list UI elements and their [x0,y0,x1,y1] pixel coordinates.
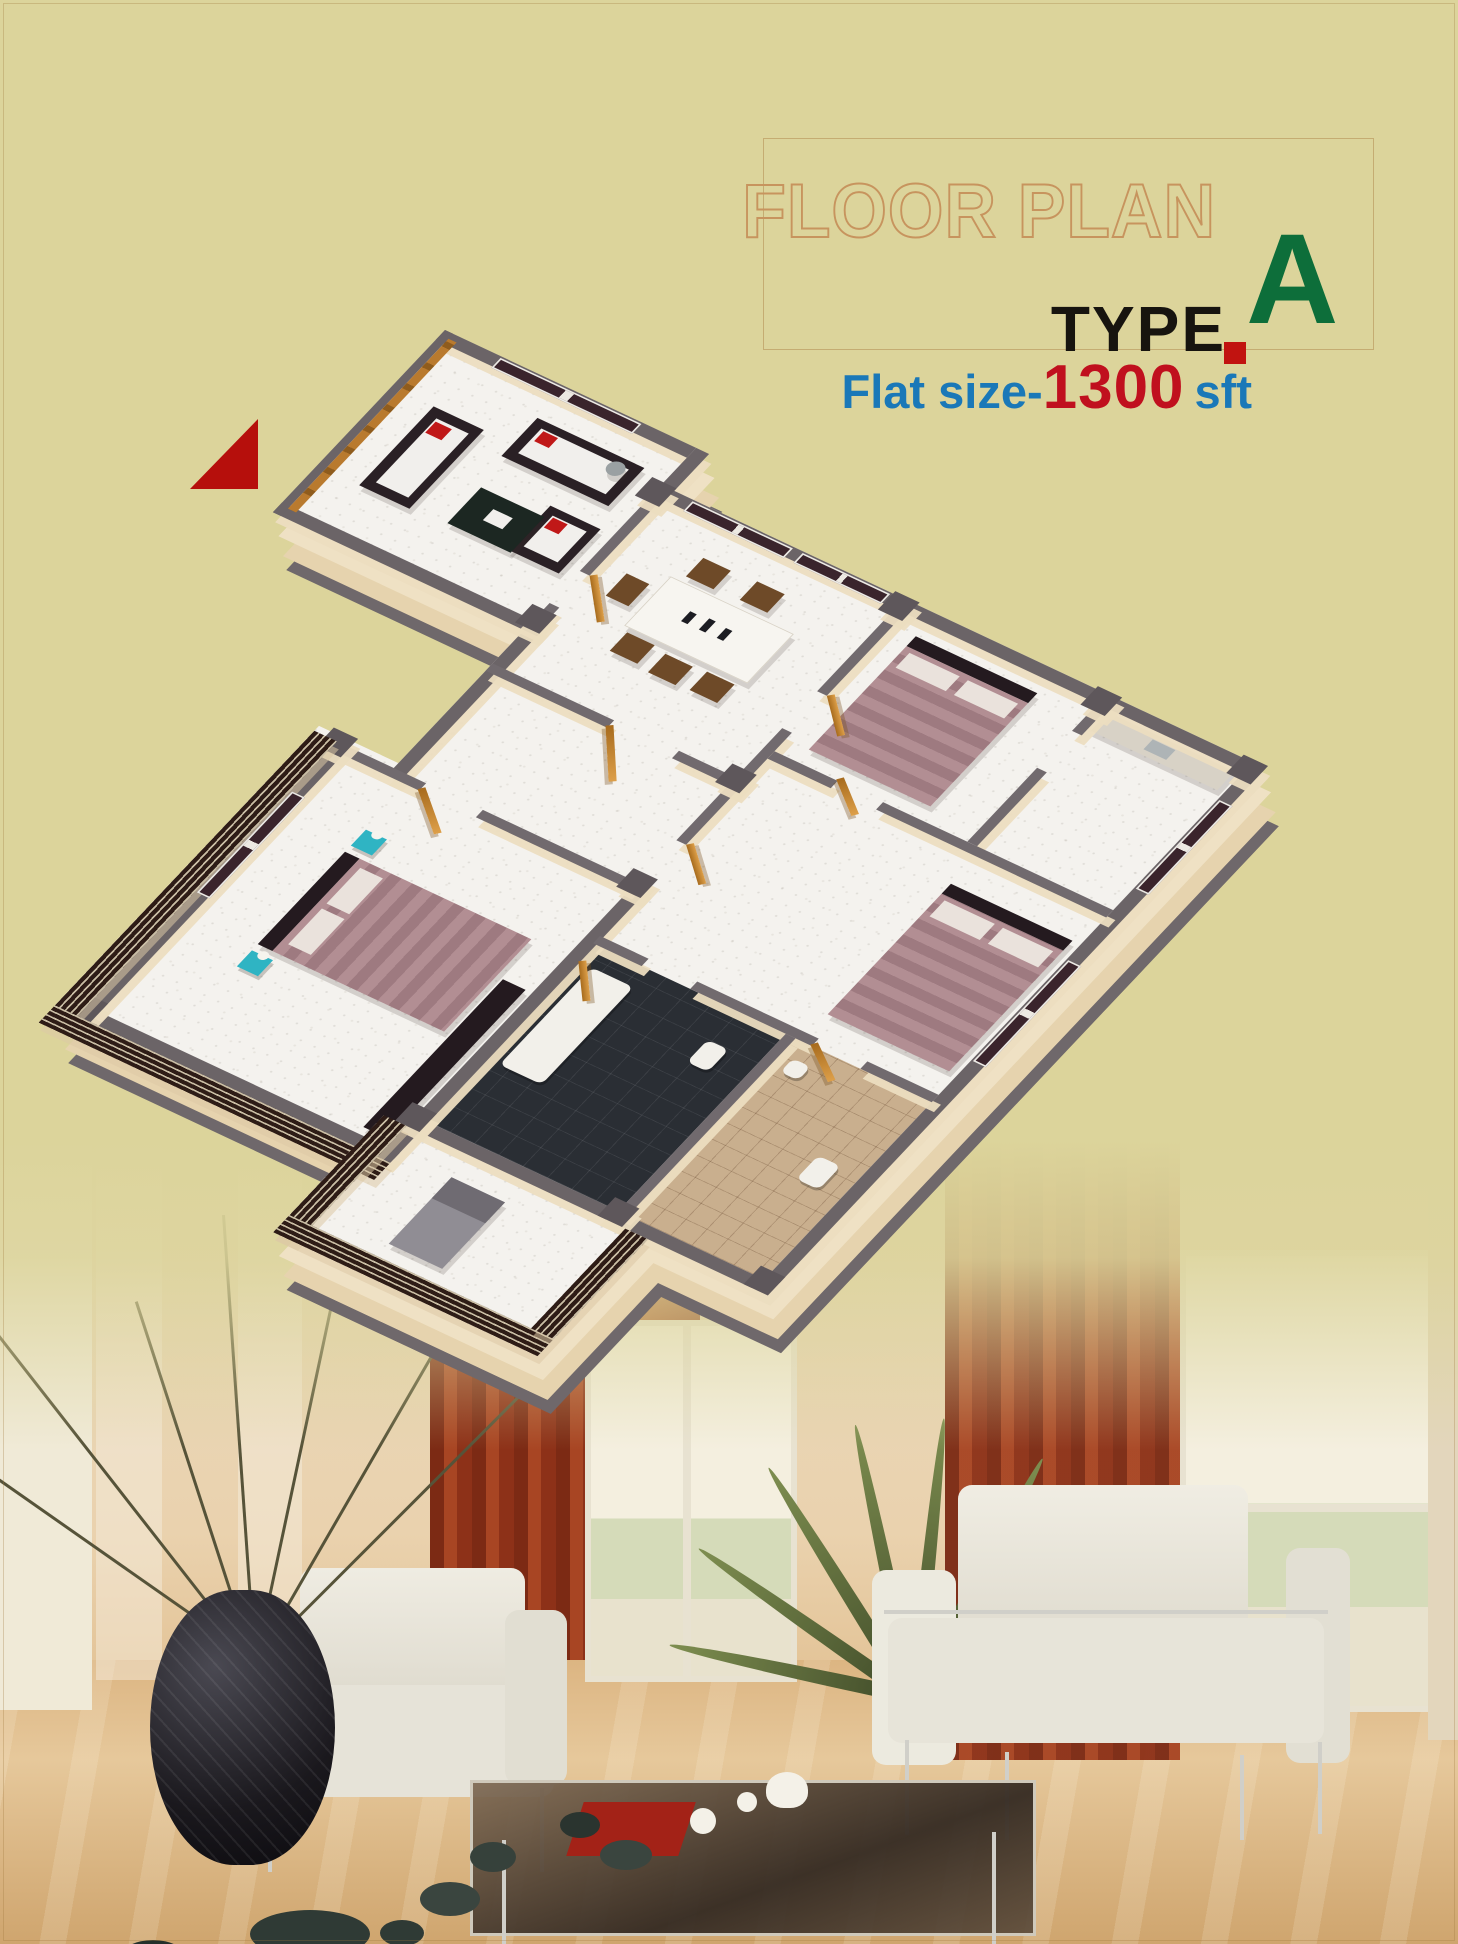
poster-page: FLOOR PLAN TYPE A Flat size- 1300 sft [0,0,1458,1944]
pebble [420,1882,480,1916]
type-value: A [1246,206,1338,353]
chrome-frame [884,1610,1328,1614]
armchair-seat [888,1618,1324,1743]
armchair-arm [505,1610,567,1785]
flat-size-unit: sft [1195,364,1252,419]
flat-size-value: 1300 [1043,352,1185,423]
pebble [380,1920,424,1944]
teapot [766,1772,808,1808]
pebble [470,1842,516,1872]
pebble [600,1840,652,1870]
flat-size-line: Flat size- 1300 sft [760,352,1252,423]
table-leg [992,1832,996,1944]
pebble [560,1812,600,1838]
teacup [690,1808,716,1834]
teacup [737,1792,757,1812]
chrome-leg [1240,1755,1244,1840]
flat-size-label: Flat size- [842,364,1043,419]
chrome-leg [1318,1742,1322,1834]
poster-title: FLOOR PLAN [731,168,1216,255]
north-arrow-icon [190,419,258,489]
black-vase [150,1590,335,1865]
